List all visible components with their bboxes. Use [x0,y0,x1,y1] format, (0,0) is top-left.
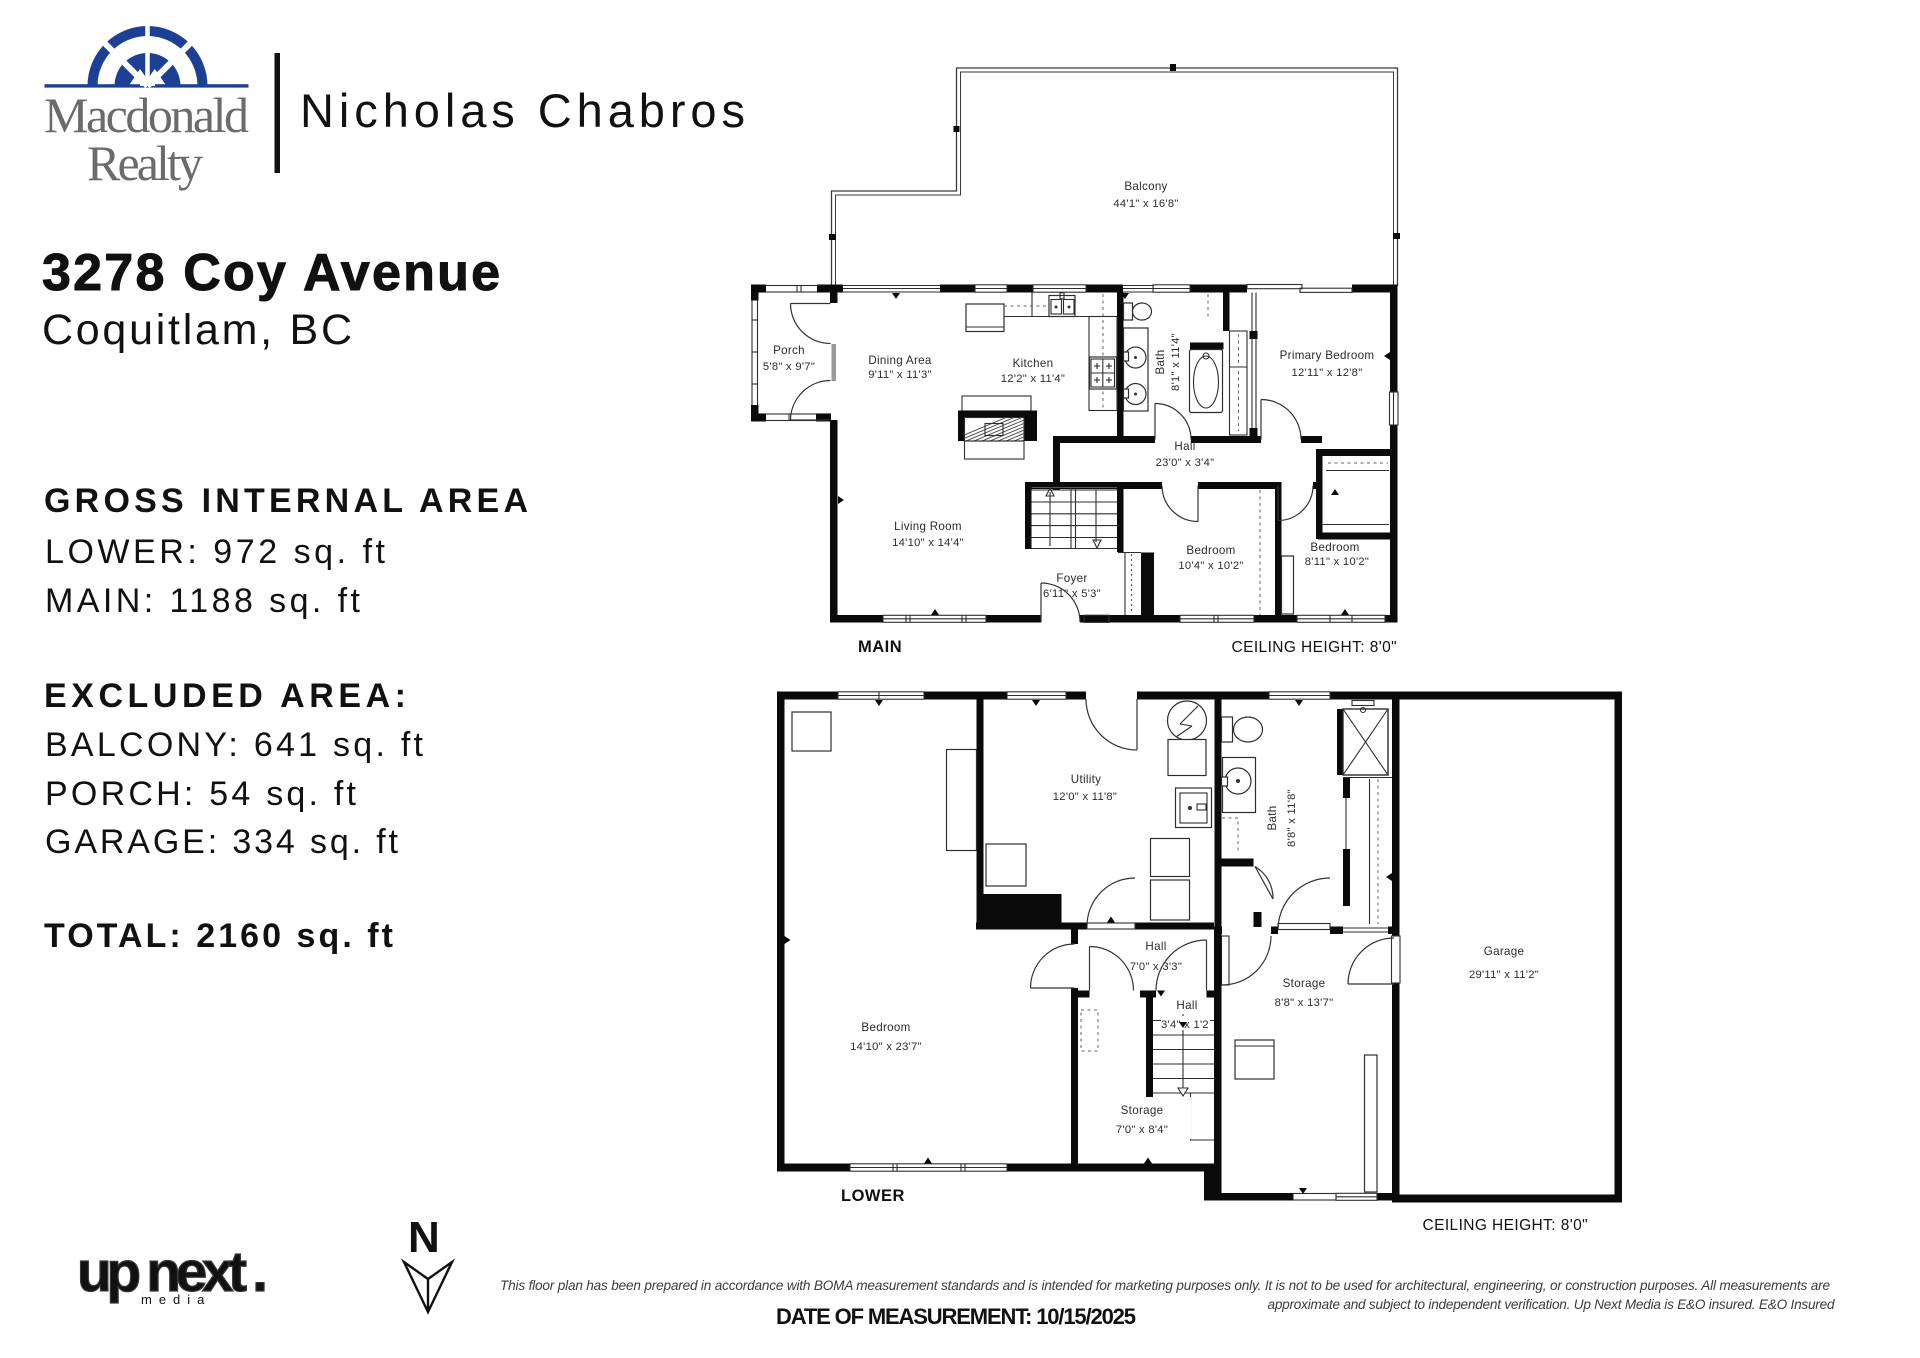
svg-text:Hall: Hall [1145,940,1166,953]
svg-text:MAIN: 1188 sq. ft: MAIN: 1188 sq. ft [45,582,361,620]
svg-text:10'4" x 10'2": 10'4" x 10'2" [1178,560,1243,572]
svg-text:14'10" x 14'4": 14'10" x 14'4" [892,537,964,549]
svg-text:Porch: Porch [773,344,805,357]
svg-text:Coquitlam, BC: Coquitlam, BC [42,306,352,354]
svg-text:CEILING HEIGHT: 8'0": CEILING HEIGHT: 8'0" [1232,639,1397,656]
svg-text:Living Room: Living Room [894,520,962,533]
svg-text:6'11" x 5'3": 6'11" x 5'3" [1043,588,1101,600]
svg-text:Hall: Hall [1174,440,1195,453]
svg-text:Balcony: Balcony [1124,180,1167,193]
svg-text:DATE OF MEASUREMENT: 10/15/202: DATE OF MEASUREMENT: 10/15/2025 [776,1304,1136,1329]
svg-text:media: media [141,1292,211,1307]
svg-text:LOWER: LOWER [841,1187,905,1205]
svg-text:Hall: Hall [1176,999,1197,1012]
svg-text:29'11" x 11'2": 29'11" x 11'2" [1469,969,1539,981]
svg-text:approximate and subject to ind: approximate and subject to independent v… [1268,1297,1835,1312]
svg-text:14'10" x 23'7": 14'10" x 23'7" [850,1041,922,1053]
svg-text:This floor plan has been prepa: This floor plan has been prepared in acc… [500,1278,1830,1293]
svg-text:Utility: Utility [1071,773,1101,786]
svg-text:Bath: Bath [1154,349,1167,374]
svg-text:12'11" x 12'8": 12'11" x 12'8" [1292,367,1363,379]
svg-text:23'0" x 3'4": 23'0" x 3'4" [1156,457,1215,469]
svg-text:7'0" x 3'3": 7'0" x 3'3" [1130,961,1182,973]
svg-text:Bedroom: Bedroom [861,1021,910,1034]
svg-text:Bedroom: Bedroom [1186,544,1235,557]
svg-text:7'0" x 8'4": 7'0" x 8'4" [1116,1124,1168,1136]
svg-text:8'11" x 10'2": 8'11" x 10'2" [1305,556,1369,568]
svg-text:MAIN: MAIN [858,638,902,656]
svg-text:BALCONY: 641 sq. ft: BALCONY: 641 sq. ft [45,726,424,764]
svg-text:EXCLUDED AREA:: EXCLUDED AREA: [44,677,406,715]
svg-text:Nicholas Chabros: Nicholas Chabros [300,84,745,137]
svg-text:8'8" x 11'8": 8'8" x 11'8" [1286,789,1298,847]
svg-text:5'8" x 9'7": 5'8" x 9'7" [763,361,815,373]
svg-text:8'8" x 13'7": 8'8" x 13'7" [1275,997,1334,1009]
svg-text:N: N [408,1213,440,1262]
svg-text:Realty: Realty [87,135,203,191]
svg-text:8'1" x 11'4": 8'1" x 11'4" [1170,333,1182,391]
svg-text:Garage: Garage [1484,945,1524,958]
svg-text:GROSS INTERNAL AREA: GROSS INTERNAL AREA [44,482,528,520]
svg-text:Kitchen: Kitchen [1013,357,1054,370]
svg-text:Dining Area: Dining Area [868,354,931,367]
svg-text:9'11" x 11'3": 9'11" x 11'3" [868,369,932,381]
svg-text:12'2" x 11'4": 12'2" x 11'4" [1001,373,1065,385]
svg-text:44'1" x 16'8": 44'1" x 16'8" [1113,198,1178,210]
svg-text:Foyer: Foyer [1056,572,1087,585]
svg-text:Bedroom: Bedroom [1310,541,1359,554]
svg-text:Storage: Storage [1121,1104,1164,1117]
svg-text:Primary Bedroom: Primary Bedroom [1280,349,1375,362]
svg-text:Storage: Storage [1283,977,1326,990]
svg-text:3278 Coy Avenue: 3278 Coy Avenue [42,244,500,302]
svg-text:PORCH: 54 sq. ft: PORCH: 54 sq. ft [45,775,357,813]
svg-text:CEILING HEIGHT: 8'0": CEILING HEIGHT: 8'0" [1423,1217,1588,1234]
svg-text:12'0" x 11'8": 12'0" x 11'8" [1053,791,1117,803]
svg-text:Bath: Bath [1266,805,1279,830]
